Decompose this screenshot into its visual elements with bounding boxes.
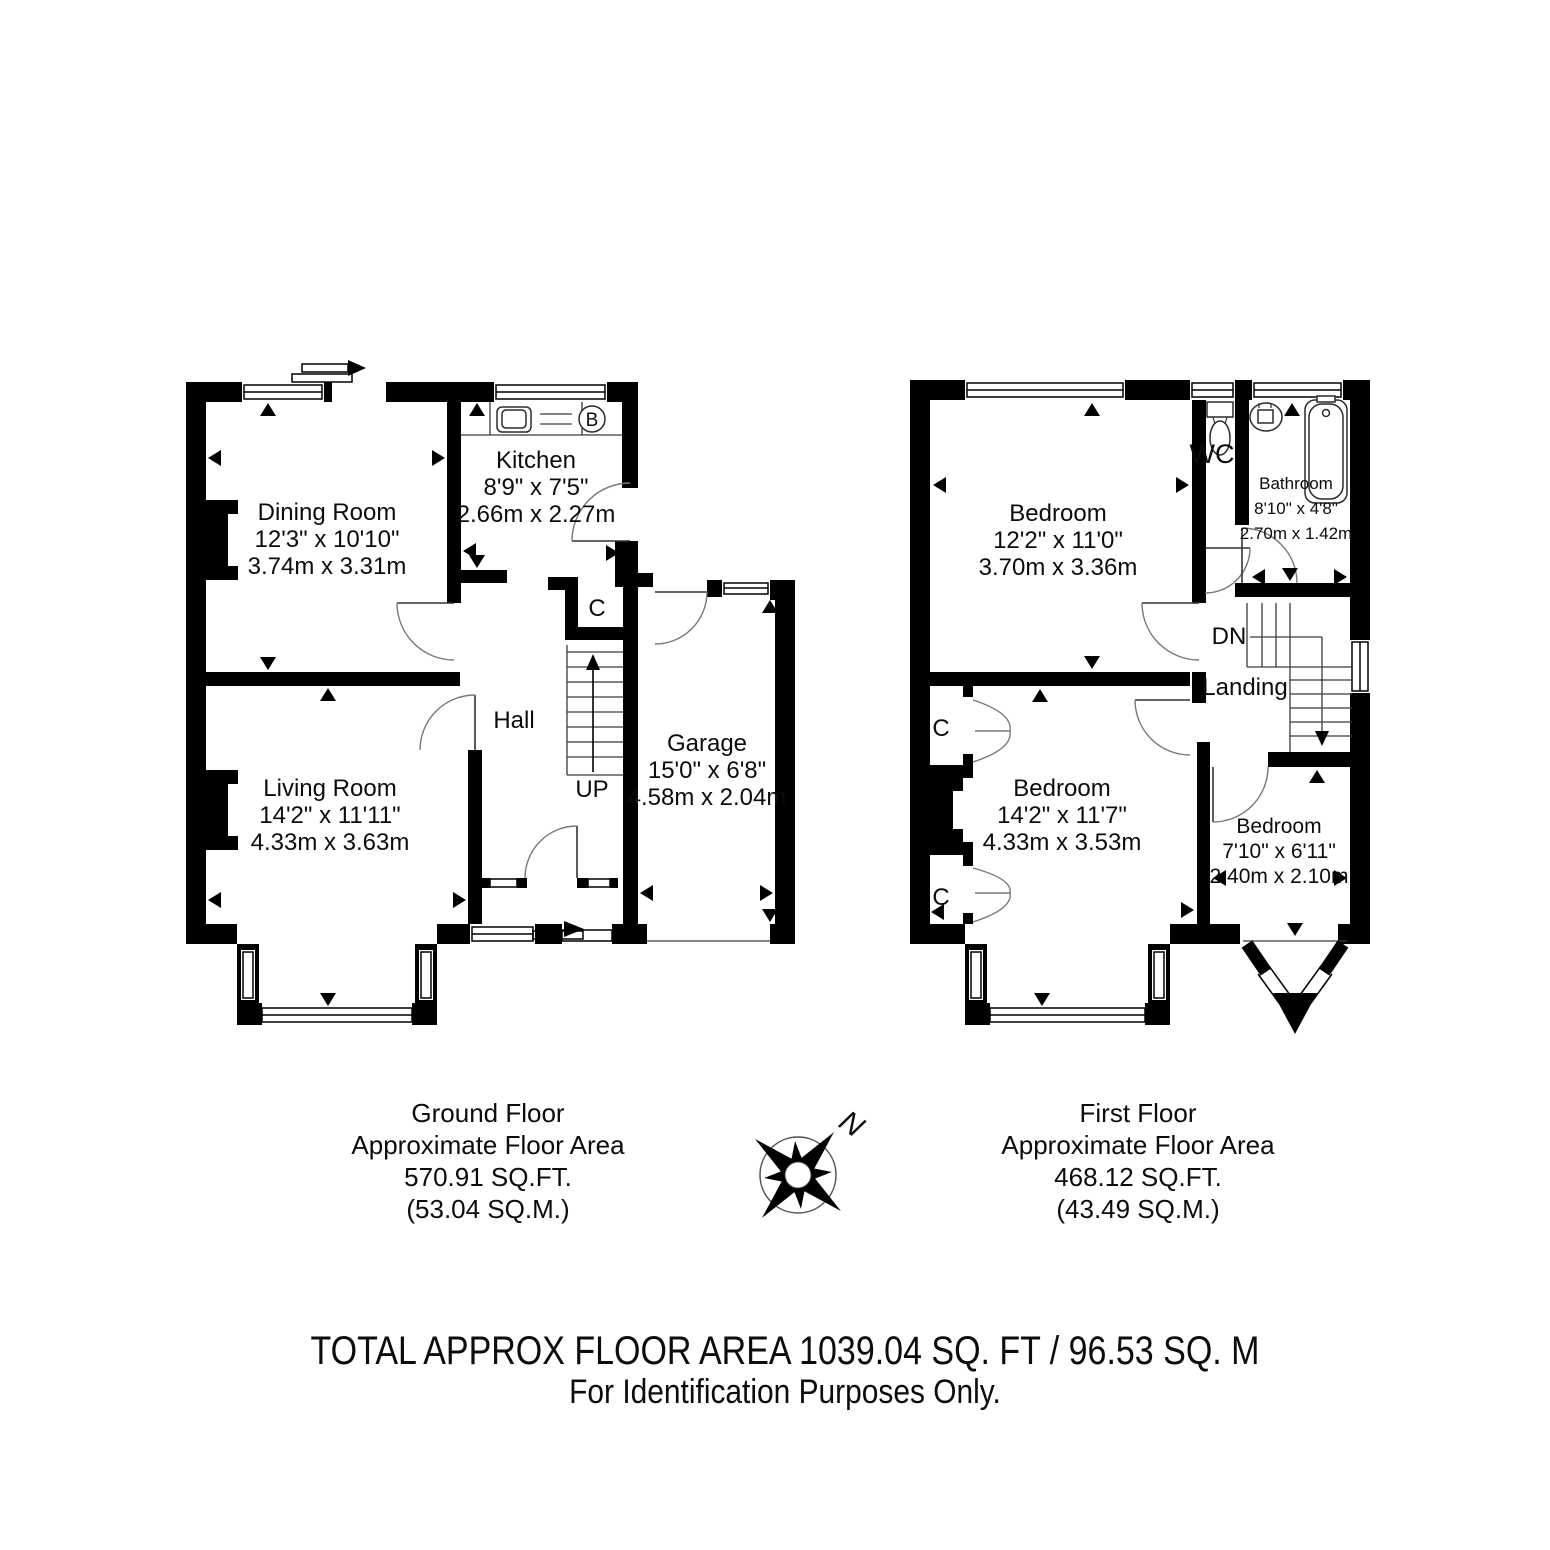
cupboard2-label: C bbox=[932, 884, 949, 911]
staircase-up bbox=[567, 645, 623, 775]
boiler-label: B bbox=[586, 410, 599, 431]
ff-caption-area-m: (43.49 SQ.M.) bbox=[1056, 1194, 1219, 1224]
ff-caption-subtitle: Approximate Floor Area bbox=[1001, 1130, 1275, 1160]
wc-label: WC bbox=[1190, 439, 1235, 469]
ground-floor-plan: B Dining Room 12'3" x 10'10" 3. bbox=[186, 360, 795, 1025]
kitchen-label: Kitchen bbox=[496, 447, 576, 474]
ground-floor-caption: Ground Floor Approximate Floor Area 570.… bbox=[351, 1098, 625, 1224]
dining-room-imperial: 12'3" x 10'10" bbox=[255, 526, 400, 553]
bedroom1-imperial: 12'2" x 11'0" bbox=[993, 527, 1123, 554]
gf-caption-area-ft: 570.91 SQ.FT. bbox=[404, 1162, 572, 1192]
garage-imperial: 15'0" x 6'8" bbox=[648, 757, 766, 784]
first-floor-plan: Bedroom 12'2" x 11'0" 3.70m x 3.36m WC B… bbox=[910, 380, 1370, 1034]
dining-room-label: Dining Room bbox=[258, 499, 397, 526]
gf-caption-title: Ground Floor bbox=[411, 1098, 565, 1128]
gf-caption-area-m: (53.04 SQ.M.) bbox=[406, 1194, 569, 1224]
bathroom-label: Bathroom bbox=[1259, 474, 1333, 493]
gf-caption-subtitle: Approximate Floor Area bbox=[351, 1130, 625, 1160]
sink-icon bbox=[497, 407, 572, 432]
side-passage-arrow-icon bbox=[292, 360, 366, 382]
floorplan-page: B Dining Room 12'3" x 10'10" 3. bbox=[0, 0, 1550, 1550]
living-room-imperial: 14'2" x 11'11" bbox=[259, 802, 400, 829]
cupboard1-label: C bbox=[932, 715, 949, 742]
dining-room-metric: 3.74m x 3.31m bbox=[248, 553, 407, 580]
floorplan-canvas: B Dining Room 12'3" x 10'10" 3. bbox=[0, 0, 1550, 1550]
compass-rose-icon: N bbox=[719, 1096, 877, 1254]
ground-floor-labels: Dining Room 12'3" x 10'10" 3.74m x 3.31m… bbox=[248, 447, 787, 856]
bedroom2-metric: 4.33m x 3.53m bbox=[983, 829, 1142, 856]
v-bay-window bbox=[1243, 941, 1347, 1034]
footer-disclaimer: For Identification Purposes Only. bbox=[569, 1372, 1001, 1410]
kitchen-imperial: 8'9" x 7'5" bbox=[484, 474, 589, 501]
up-arrow-icon bbox=[586, 654, 600, 772]
footer: TOTAL APPROX FLOOR AREA 1039.04 SQ. FT /… bbox=[311, 1327, 1260, 1410]
dn-label: DN bbox=[1212, 623, 1247, 650]
kitchen-metric: 2.66m x 2.27m bbox=[457, 501, 616, 528]
living-room-label: Living Room bbox=[263, 775, 396, 802]
bedroom1-label: Bedroom bbox=[1009, 500, 1106, 527]
landing-label: Landing bbox=[1202, 674, 1287, 701]
north-label: N bbox=[833, 1104, 870, 1144]
garage-label: Garage bbox=[667, 730, 747, 757]
up-label: UP bbox=[575, 776, 608, 803]
first-floor-caption: First Floor Approximate Floor Area 468.1… bbox=[1001, 1098, 1275, 1224]
bedroom2-imperial: 14'2" x 11'7" bbox=[997, 802, 1127, 829]
bedroom1-metric: 3.70m x 3.36m bbox=[979, 554, 1138, 581]
boiler-badge: B bbox=[579, 406, 605, 432]
basin-icon bbox=[1250, 403, 1282, 431]
first-floor-markers bbox=[931, 403, 1347, 1006]
bedroom3-imperial: 7'10" x 6'11" bbox=[1222, 840, 1336, 863]
bedroom3-label: Bedroom bbox=[1236, 815, 1321, 838]
ff-caption-area-ft: 468.12 SQ.FT. bbox=[1054, 1162, 1222, 1192]
kitchen-counter: B bbox=[461, 402, 622, 435]
bedroom2-label: Bedroom bbox=[1013, 775, 1110, 802]
cupboard-label-gf: C bbox=[588, 595, 605, 622]
living-room-metric: 4.33m x 3.63m bbox=[251, 829, 410, 856]
hall-label: Hall bbox=[493, 707, 534, 734]
garage-metric: 4.58m x 2.04m bbox=[628, 784, 787, 811]
bedroom3-metric: 2.40m x 2.10m bbox=[1210, 865, 1349, 888]
footer-total-area: TOTAL APPROX FLOOR AREA 1039.04 SQ. FT /… bbox=[311, 1327, 1260, 1372]
bathroom-metric: 2.70m x 1.42m bbox=[1240, 524, 1352, 543]
ff-caption-title: First Floor bbox=[1080, 1098, 1197, 1128]
bathroom-imperial: 8'10" x 4'8" bbox=[1254, 499, 1338, 518]
